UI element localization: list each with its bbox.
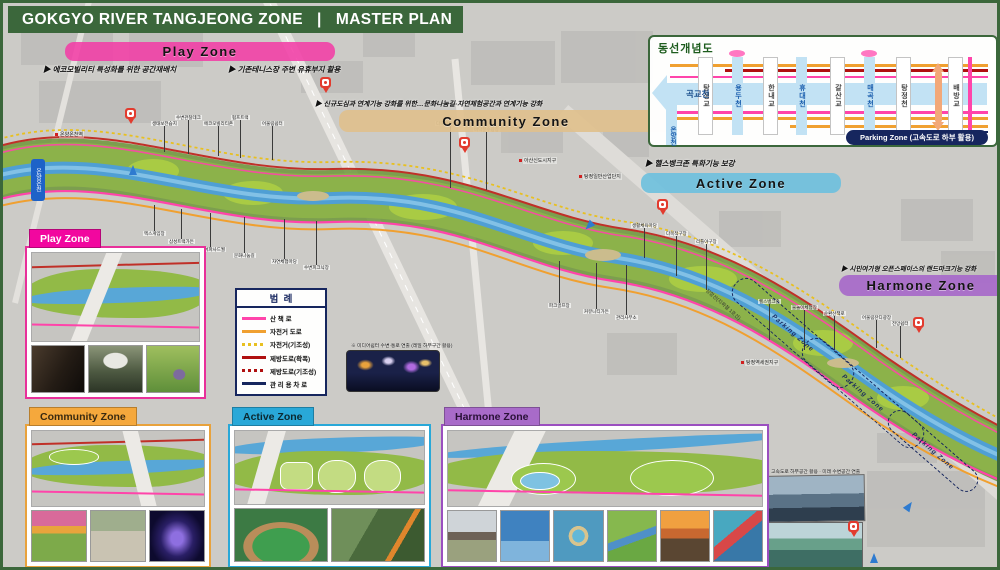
map-callout-label: 엑스게임장 <box>143 231 166 236</box>
map-callout-leader-line <box>900 326 901 358</box>
place-label: 아산신도시지구 <box>519 157 557 164</box>
map-callout: 다목적구장 <box>665 231 688 276</box>
legend-line-sample <box>242 356 266 359</box>
legend-item: 자전거(기조성) <box>242 339 320 349</box>
legend-item: 관 리 용 차 로 <box>242 379 320 389</box>
place-label: 탕정일반산업단지 <box>579 173 622 180</box>
camera-glyph <box>661 203 664 206</box>
viewpoint-pin-icon <box>320 77 331 88</box>
diagram-bridge-column: 갈산교 <box>830 57 845 135</box>
plan-trail-line <box>31 490 205 495</box>
viewpoint-pin-icon <box>125 108 136 119</box>
annotation-harmone: ▶ 시민여가형 오픈스페이스의 랜드마크기능 강화 <box>841 263 976 273</box>
diagram-column-label: 탕정천 <box>899 84 909 108</box>
plan-garden-oval <box>49 449 99 465</box>
diagram-stream-column: 매곡천 <box>864 57 875 135</box>
map-callout-label: 커뮤니티가든 <box>583 309 610 314</box>
map-callout-leader-line <box>706 244 707 290</box>
map-callout-label: 수변피크닉장 <box>303 265 330 270</box>
plan-pool <box>520 472 560 491</box>
pump-track-photo <box>146 345 200 393</box>
map-callout-leader-line <box>154 205 155 231</box>
inset-tab-harmone-label: Harmone Zone <box>455 411 529 423</box>
map-callout: 엑스게임장 <box>143 205 166 236</box>
diagram-column-label: 갈산교 <box>833 84 843 108</box>
community-zone-photos <box>31 510 205 562</box>
diagram-column-label: 매곡천 <box>865 84 875 108</box>
map-callout-leader-line <box>218 126 219 156</box>
map-callout: 자연체험마당 <box>271 219 298 264</box>
plan-sports-field <box>280 462 312 490</box>
map-callout: 어울림쉼터 <box>261 121 284 160</box>
map-callout: 리틀야구장 <box>695 239 718 290</box>
sunset-lawn-photo <box>660 510 710 562</box>
inset-panel-community <box>25 424 211 568</box>
map-callout: 수변관찰데크 <box>175 115 202 154</box>
viewpoint-pin-icon <box>913 317 924 328</box>
place-label: 탕정역세권지구 <box>741 359 779 366</box>
active-zone-plan <box>234 430 425 505</box>
play-zone-photos <box>31 345 200 393</box>
master-plan-canvas: GOKGYO RIVER TANGJEONG ZONE | MASTER PLA… <box>0 0 1000 570</box>
plan-trail-line <box>31 323 200 328</box>
play-hill-photo <box>607 510 657 562</box>
diagram-column-label: 한내교 <box>766 84 776 108</box>
light-tunnel-photo <box>149 510 205 562</box>
underpass-render-photo <box>767 474 866 523</box>
zone-banner-harmone: Harmone Zone <box>839 275 1000 296</box>
plan-lawn-oval <box>630 460 714 497</box>
circulation-diagram-panel: 동선개념도 곡교천 온양천 Parking Zone (고속도로 하부 활용) … <box>648 35 998 147</box>
parking-zone-pill: Parking Zone (고속도로 하부 활용) <box>846 130 988 145</box>
diagram-column-label: 배방교 <box>951 84 961 108</box>
outdoor-fitness-photo <box>331 508 425 562</box>
legend-line-sample <box>242 369 266 372</box>
diagram-bridge-column: 한내교 <box>763 57 778 135</box>
map-callout: 생활체육마당 <box>631 223 658 258</box>
direction-arrow-icon <box>129 165 137 175</box>
map-callout-label: 관리사무소 <box>615 315 638 320</box>
map-callout-leader-line <box>210 213 211 247</box>
place-label: 온양온천역 <box>55 131 84 138</box>
map-callout: 펌프트랙 <box>231 115 250 158</box>
diagram-stream-column: 휴대천 <box>796 57 807 135</box>
camera-glyph <box>129 112 132 115</box>
road-sign: 온양온천 <box>31 159 45 201</box>
map-callout-label: 삼성트랙가든 <box>168 239 195 244</box>
map-callout: 커뮤니티가든 <box>583 263 610 314</box>
legend-item-label: 제방도로(확폭) <box>270 353 310 363</box>
adventure-playground-photo <box>713 510 763 562</box>
map-callout-leader-line <box>626 265 627 315</box>
zone-banner-community-label: Community Zone <box>442 114 569 129</box>
inset-panel-harmone <box>441 424 769 568</box>
direction-arrow-icon <box>870 553 878 563</box>
map-callout: 바닥분수광장 <box>473 127 500 190</box>
legend-line-sample <box>242 330 266 333</box>
harmone-zone-plan <box>447 430 763 507</box>
bridge-marker-icon <box>729 50 745 57</box>
map-callout: 어울림잔디광장 <box>861 315 892 348</box>
map-callout-leader-line <box>272 126 273 160</box>
legend-item-label: 제방도로(기조성) <box>270 366 316 376</box>
annotation-play-1: ▶ 에코모빌리티 특성화를 위한 공간재배치 <box>43 64 176 75</box>
place-label-text: 온양온천역 <box>59 131 84 138</box>
map-callout-leader-line <box>164 126 165 152</box>
plan-sports-field <box>318 460 356 493</box>
legend-item-label: 관 리 용 차 로 <box>270 379 307 389</box>
diagram-bridge-column: 탕정천 <box>896 57 911 135</box>
map-callout-leader-line <box>188 120 189 154</box>
map-callout: 수변피크닉장 <box>303 221 330 270</box>
community-zone-plan <box>31 430 205 507</box>
inset-tab-community-label: Community Zone <box>40 411 126 423</box>
map-callout: 에코모빌리티존 <box>203 121 234 156</box>
plan-sports-field <box>364 460 402 493</box>
viewpoint-pin-icon <box>657 199 668 210</box>
map-callout: 생태보전습지 <box>151 121 178 152</box>
inset-panel-play <box>25 246 206 399</box>
diagram-column-label: 휴대천 <box>797 84 807 108</box>
viewpoint-pin-icon <box>459 137 470 148</box>
place-label-text: 탕정일반산업단지 <box>583 173 622 180</box>
place-label-text: 아산신도시지구 <box>523 157 557 164</box>
viewpoint-pin-icon <box>848 521 859 532</box>
picnic-plaza-photo <box>90 510 146 562</box>
legend-items: 산 책 로자전거 도로자전거(기조성)제방도로(확폭)제방도로(기조성)관 리 … <box>237 308 325 394</box>
diagram-stream-column: 용두천 <box>732 57 743 135</box>
zone-banner-play-label: Play Zone <box>163 44 238 59</box>
media-wall-caption: ※ 미디어쉼터 수변·통로 연출 (레일 하부구간 활용) <box>351 342 452 349</box>
zone-banner-play: Play Zone <box>65 42 335 61</box>
shade-canopy-photo <box>447 510 497 562</box>
diagram-side-stream-label: 온양천 <box>667 126 677 146</box>
zone-banner-active-label: Active Zone <box>696 176 786 191</box>
camera-glyph <box>463 141 466 144</box>
page-title: GOKGYO RIVER TANGJEONG ZONE | MASTER PLA… <box>8 6 463 33</box>
camera-glyph <box>852 525 855 528</box>
inset-tab-active: Active Zone <box>232 407 314 426</box>
legend-item: 제방도로(확폭) <box>242 353 320 363</box>
harmone-zone-photos <box>447 510 763 562</box>
warehouse-bike-park-photo <box>31 345 85 393</box>
map-callout-leader-line <box>450 126 451 188</box>
annotation-community: ▶ 신규도심과 연계기능 강화를 위한…문화나눔길·자연체험공간과 연계기능 강… <box>315 98 542 108</box>
annotation-play-2: ▶ 기존테니스장 주변 유휴부지 활용 <box>228 64 340 75</box>
wave-pool-photo <box>500 510 550 562</box>
map-callout-leader-line <box>486 132 487 190</box>
media-wall-photo <box>346 350 440 392</box>
inset-tab-play: Play Zone <box>29 229 101 248</box>
diagram-bridge-column: 배방교 <box>948 57 963 135</box>
map-callout-leader-line <box>559 261 560 303</box>
place-marker-icon <box>519 159 522 162</box>
map-callout-label: 파크골프장 <box>548 303 571 308</box>
legend-item: 산 책 로 <box>242 313 320 323</box>
map-callout-leader-line <box>644 228 645 258</box>
camera-glyph <box>324 81 327 84</box>
legend-item-label: 자전거 도로 <box>270 326 302 336</box>
diagram-walk-connector <box>968 57 972 135</box>
baseball-field-photo <box>234 508 328 562</box>
map-callout: 파크골프장 <box>548 261 571 308</box>
legend-item-label: 산 책 로 <box>270 313 292 323</box>
diagram-column-label: 용두천 <box>733 84 743 108</box>
place-label-text: 탕정역세권지구 <box>745 359 779 366</box>
legend-title: 범 례 <box>237 290 325 308</box>
plan-levee-line <box>31 438 205 444</box>
diagram-side-stream: 온양천 <box>666 101 677 145</box>
inset-tab-harmone: Harmone Zone <box>444 407 540 426</box>
map-callout: 전망쉼터 <box>891 321 910 358</box>
inset-panel-active <box>228 424 431 568</box>
map-callout-leader-line <box>284 219 285 259</box>
map-callout-label: 문화나눔길 <box>233 253 256 258</box>
map-callout-leader-line <box>240 120 241 158</box>
legend-item: 자전거 도로 <box>242 326 320 336</box>
map-callout: 문화나눔길 <box>233 217 256 258</box>
legend-line-sample <box>242 343 266 346</box>
circulation-diagram-title: 동선개념도 <box>658 40 714 56</box>
camera-glyph <box>917 321 920 324</box>
flower-garden-photo <box>31 510 87 562</box>
diagram-river-label: 곡교천 <box>686 88 709 100</box>
legend-line-sample <box>242 317 266 320</box>
outdoor-cinema-photo <box>88 345 142 393</box>
play-zone-plan <box>31 252 200 342</box>
map-callout-leader-line <box>834 316 835 350</box>
annotation-active: ▶ 헬스뱅크존 특화기능 보강 <box>645 158 735 169</box>
legend-panel: 범 례 산 책 로자전거 도로자전거(기조성)제방도로(확폭)제방도로(기조성)… <box>235 288 327 396</box>
bridge-marker-icon <box>861 50 877 57</box>
map-callout-leader-line <box>244 217 245 253</box>
place-marker-icon <box>579 175 582 178</box>
inset-tab-community: Community Zone <box>29 407 137 426</box>
inset-tab-play-label: Play Zone <box>40 233 90 245</box>
map-callout-leader-line <box>596 263 597 309</box>
updown-arrow-icon <box>935 71 942 123</box>
water-playground-photo <box>553 510 603 562</box>
map-callout-leader-line <box>876 320 877 348</box>
active-zone-photos <box>234 508 425 562</box>
map-callout: 삼성트랙가든 <box>168 209 195 244</box>
legend-line-sample <box>242 382 266 385</box>
inset-tab-active-label: Active Zone <box>243 411 303 423</box>
zone-banner-active: Active Zone <box>641 173 841 193</box>
map-callout-leader-line <box>676 236 677 276</box>
map-callout: 관리사무소 <box>615 265 638 320</box>
zone-banner-harmone-label: Harmone Zone <box>866 278 975 293</box>
legend-item: 제방도로(기조성) <box>242 366 320 376</box>
legend-item-label: 자전거(기조성) <box>270 339 310 349</box>
map-callout-leader-line <box>181 209 182 239</box>
place-marker-icon <box>741 361 744 364</box>
road-sign-label: 온양온천 <box>34 168 43 192</box>
zone-banner-community: Community Zone <box>339 110 673 132</box>
place-marker-icon <box>55 133 58 136</box>
map-callout-leader-line <box>316 221 317 265</box>
map-callout-label: 자연체험마당 <box>271 259 298 264</box>
